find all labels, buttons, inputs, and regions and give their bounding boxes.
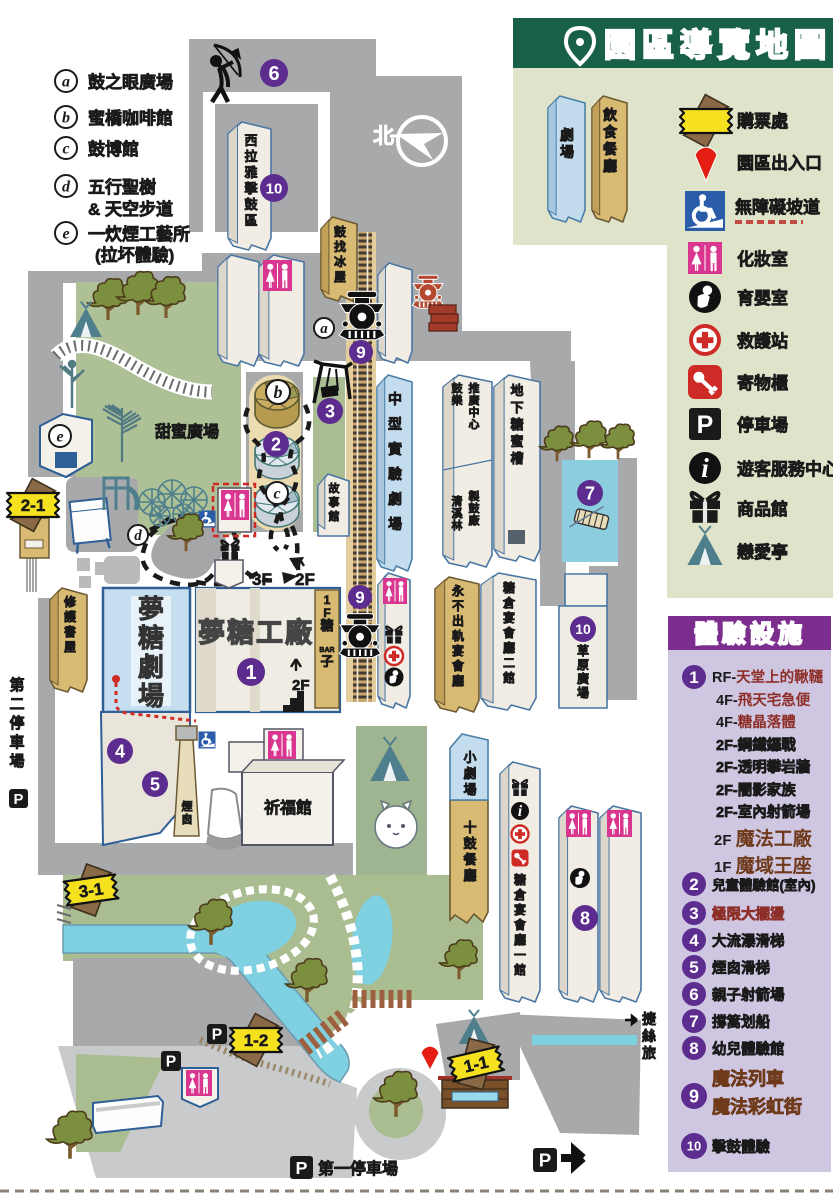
svg-text:兒童體驗館(室內): 兒童體驗館(室內) [712,877,816,893]
svg-text:體驗設施: 體驗設施 [694,620,806,648]
svg-text:第二停車場: 第二停車場 [9,676,24,770]
svg-text:擊鼓體驗: 擊鼓體驗 [712,1138,770,1156]
svg-text:甜蜜廣場: 甜蜜廣場 [155,422,219,441]
svg-text:第一停車場: 第一停車場 [318,1159,398,1178]
svg-text:c: c [62,141,69,158]
svg-text:a: a [62,74,70,91]
svg-text:7: 7 [689,1012,698,1031]
svg-text:P: P [166,1054,176,1071]
svg-text:i: i [701,453,709,483]
svg-text:極限大擺盪: 極限大擺盪 [711,905,785,923]
svg-text:故事館: 故事館 [328,481,341,523]
svg-text:鼓樂: 鼓樂 [451,381,464,407]
svg-text:P: P [296,1158,308,1178]
svg-text:幼兒體驗館: 幼兒體驗館 [712,1040,785,1058]
svg-text:一炊煙工藝所: 一炊煙工藝所 [88,224,190,244]
svg-text:2-1: 2-1 [21,496,46,515]
svg-text:BAR: BAR [319,647,334,654]
svg-text:製鼓廠: 製鼓廠 [468,489,481,527]
svg-text:子: 子 [320,654,333,669]
svg-text:P: P [212,1027,222,1044]
svg-text:10: 10 [575,621,591,637]
svg-text:4F-糖晶落體: 4F-糖晶落體 [716,713,796,731]
svg-text:草原廣場: 草原廣場 [577,643,589,700]
svg-text:2F: 2F [295,570,315,589]
svg-text:b: b [274,382,283,402]
svg-text:3: 3 [325,401,335,421]
svg-text:2F-闇影家族: 2F-闇影家族 [716,781,796,799]
svg-text:十鼓餐廳: 十鼓餐廳 [462,820,477,883]
svg-text:1: 1 [245,662,256,684]
svg-text:2: 2 [271,434,281,454]
svg-text:停車場: 停車場 [737,415,788,435]
svg-text:9: 9 [356,343,365,362]
svg-text:夢糖工廠: 夢糖工廠 [198,617,314,648]
svg-text:P: P [14,792,24,808]
svg-text:7: 7 [585,483,595,503]
svg-text:4: 4 [115,741,125,761]
svg-text:魔法列車: 魔法列車 [712,1068,784,1089]
svg-text:鼓之眼廣場: 鼓之眼廣場 [88,72,173,92]
svg-text:園區導覽地圖: 園區導覽地圖 [604,27,832,63]
svg-text:戀愛亭: 戀愛亭 [737,542,788,562]
svg-text:鼓博館: 鼓博館 [88,139,139,159]
svg-text:9: 9 [689,1086,699,1106]
svg-text:(拉坏體驗): (拉坏體驗) [95,245,174,265]
svg-text:& 天空步道: & 天空步道 [88,199,173,219]
svg-text:捷絲旅: 捷絲旅 [642,1011,657,1061]
svg-text:P: P [539,1150,551,1171]
svg-text:西拉雅擊鼓區: 西拉雅擊鼓區 [244,133,258,228]
svg-text:3F: 3F [252,570,272,589]
svg-text:RF-天堂上的鞦韆: RF-天堂上的鞦韆 [712,668,824,686]
svg-text:地下糖蜜槽: 地下糖蜜槽 [510,383,523,466]
svg-text:2: 2 [689,875,698,894]
svg-text:五行聖樹: 五行聖樹 [88,177,156,197]
svg-text:親子射箭場: 親子射箭場 [712,986,785,1004]
svg-text:魔法彩虹街: 魔法彩虹街 [712,1096,802,1117]
svg-text:北: 北 [373,125,394,148]
svg-text:5: 5 [150,774,160,794]
svg-text:夢糖劇場: 夢糖劇場 [138,594,164,711]
svg-text:3: 3 [689,904,698,923]
svg-text:煙囪滑梯: 煙囪滑梯 [712,959,770,977]
svg-text:2F-室內射箭場: 2F-室內射箭場 [716,803,811,821]
svg-text:d: d [134,528,142,544]
svg-text:2F-鋼鐵鑼戰: 2F-鋼鐵鑼戰 [716,736,796,754]
svg-text:化妝室: 化妝室 [737,249,788,269]
svg-text:4F-飛天宅急便: 4F-飛天宅急便 [716,691,811,709]
svg-text:永不出軌宴會廳: 永不出軌宴會廳 [451,583,465,688]
svg-text:遊客服務中心: 遊客服務中心 [737,459,833,479]
svg-text:購票處: 購票處 [737,111,789,131]
svg-text:6: 6 [689,985,698,1004]
svg-text:8: 8 [580,908,590,928]
svg-text:e: e [56,429,63,446]
svg-text:b: b [62,110,70,127]
svg-text:寄物櫃: 寄物櫃 [737,373,788,393]
svg-text:劇場: 劇場 [560,127,574,160]
svg-text:c: c [273,486,280,503]
svg-text:9: 9 [355,588,364,607]
svg-text:糖倉宴會廳一館: 糖倉宴會廳一館 [513,872,527,977]
svg-text:d: d [62,179,71,196]
svg-text:飲食餐廳: 飲食餐廳 [602,107,618,174]
svg-text:10: 10 [266,180,283,197]
svg-text:10: 10 [687,1139,701,1154]
svg-text:園區出入口: 園區出入口 [737,153,822,173]
svg-text:商品館: 商品館 [737,499,788,519]
svg-text:撐篙划船: 撐篙划船 [712,1013,770,1031]
svg-text:祈福館: 祈福館 [264,798,312,817]
svg-text:2F-透明攀岩牆: 2F-透明攀岩牆 [716,758,811,776]
svg-text:4: 4 [689,931,699,950]
svg-text:1F: 1F [323,593,330,620]
svg-text:e: e [62,226,69,243]
svg-text:推廣中心: 推廣中心 [469,381,480,431]
svg-text:8: 8 [689,1039,698,1058]
svg-text:3-1: 3-1 [78,879,105,901]
svg-text:煙囪: 煙囪 [182,799,193,826]
svg-text:大流瀑滑梯: 大流瀑滑梯 [712,932,785,950]
svg-text:小劇場: 小劇場 [463,750,476,797]
svg-text:P: P [697,411,714,439]
svg-text:1: 1 [689,668,698,687]
svg-text:糖倉宴會廳二館: 糖倉宴會廳二館 [502,580,516,685]
svg-text:6: 6 [268,63,279,85]
svg-text:無障礙坡道: 無障礙坡道 [735,197,820,217]
svg-text:育嬰室: 育嬰室 [737,288,788,308]
svg-text:蜜橋咖啡館: 蜜橋咖啡館 [88,108,173,128]
svg-text:清溪林: 清溪林 [452,494,464,532]
svg-text:5: 5 [689,958,698,977]
svg-text:糖: 糖 [320,618,333,633]
svg-text:救護站: 救護站 [737,331,788,351]
svg-text:a: a [320,321,328,337]
svg-text:1-2: 1-2 [244,1031,269,1050]
